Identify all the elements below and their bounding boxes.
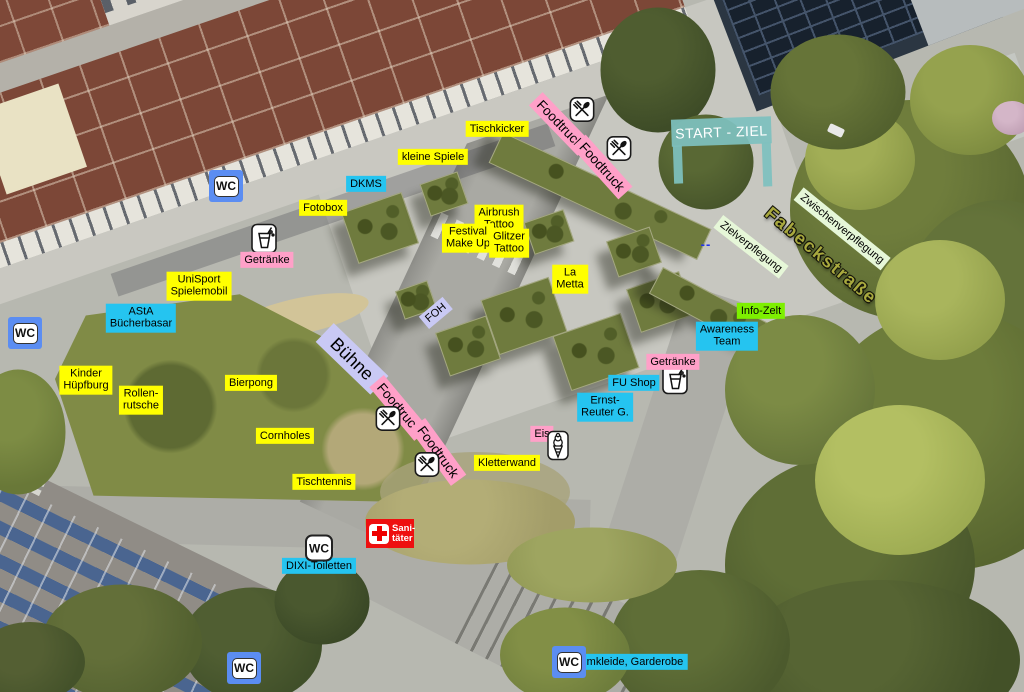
label-info-zelt: Info-Zelt [737,303,785,319]
wc-text: WC [232,658,257,679]
label-rollenrutsche: Rollen- rutsche [119,386,163,415]
wc-text: WC [214,176,239,197]
label-tischtennis: Tischtennis [292,474,355,490]
icecream-icon [547,431,569,466]
label-glitzer-tattoo: Glitzer Tattoo [489,229,529,258]
label-kletterwand: Kletterwand [474,455,540,471]
wc-icon-west: WC [8,317,42,349]
tree-canopy [507,528,677,603]
cutlery-icon-4 [415,452,440,482]
wc-icon-south: WC [227,652,261,684]
wc-icon-north-box: WC [209,170,243,202]
start-ziel-banner: START - ZIEL [671,116,772,146]
wc-text: WC [13,323,38,344]
label-kleine-spiele: kleine Spiele [398,149,468,165]
tree-canopy [875,240,1005,360]
sanitaeter-station: Sani- täter [366,519,414,548]
label-ernst-reuter-g: Ernst- Reuter G. [577,393,633,422]
label-umkleide-garderobe: Umkleide, Garderobe [575,654,688,670]
gate-leg-right [762,142,773,186]
red-cross-icon [369,524,389,544]
label-asta-buecherbasar: AStA Bücherbasar [106,304,176,333]
wc-icon-dixi-box: WC [305,535,333,562]
label-cornholes: Cornholes [256,428,314,444]
wc-icon-umkleide: WC [552,646,586,678]
label-la-metta: La Metta [552,265,588,294]
tree-canopy [815,405,985,555]
label-fotobox: Fotobox [299,200,347,216]
cutlery-icon-1 [570,97,595,127]
sanitaeter-label: Sani- täter [392,524,415,544]
label-tischkicker: Tischkicker [466,121,529,137]
wc-icon-south-box: WC [227,652,261,684]
label-bierpong: Bierpong [225,375,277,391]
cutlery-icon-2 [607,136,632,166]
tree-canopy [910,45,1024,155]
label-awareness-team: Awareness Team [696,322,758,351]
label-kinder-huepfburg: Kinder Hüpfburg [59,366,112,395]
route-dashes: -- [701,237,712,252]
label-fu-shop: FU Shop [608,375,659,391]
label-unisport-spielemobil: UniSport Spielemobil [167,272,232,301]
label-getraenke-west: Getränke [240,252,293,268]
event-map: START - ZIEL Fabeckstraße -- Sani- täter… [0,0,1024,692]
wc-text: WC [557,652,582,673]
wc-icon-umkleide-box: WC [552,646,586,678]
wc-icon-dixi: WC [305,535,333,562]
label-dkms: DKMS [346,176,386,192]
tree-canopy [601,8,716,133]
gate-leg-left [673,145,683,183]
cutlery-icon-3 [376,406,401,436]
label-festival-make-up: Festival Make Up [442,224,494,253]
wc-icon-west-box: WC [8,317,42,349]
start-ziel-gate: START - ZIEL [671,116,773,183]
tree-canopy [992,101,1024,135]
wc-icon-north: WC [209,170,243,202]
label-getraenke-ost: Getränke [646,354,699,370]
